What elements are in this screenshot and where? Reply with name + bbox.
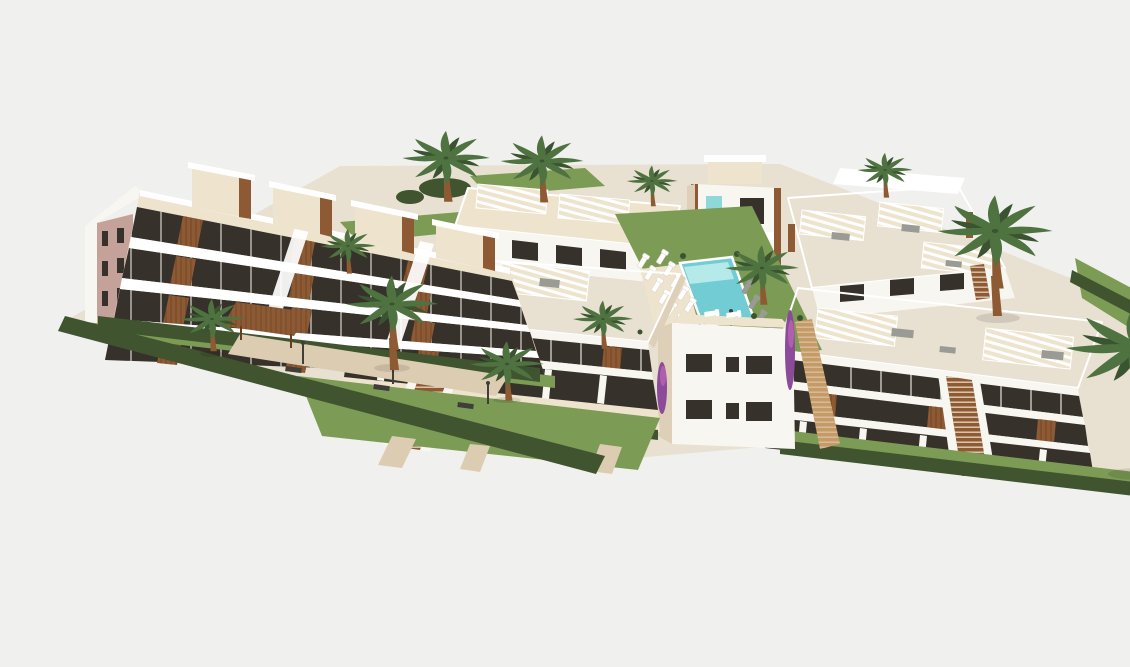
- lamp-post: [487, 384, 489, 404]
- pergola-post: [240, 326, 242, 340]
- roof-box: [708, 162, 762, 184]
- window: [890, 278, 914, 296]
- architectural-rendering: [40, 16, 1130, 651]
- window: [600, 249, 626, 270]
- potted-plant: [751, 313, 757, 319]
- hedge: [396, 190, 424, 204]
- wood-panel: [788, 224, 795, 252]
- pergola-post: [290, 334, 292, 348]
- facade: [672, 323, 795, 449]
- bougainvillea-bloom: [660, 366, 666, 386]
- lamp-post: [302, 344, 304, 364]
- window: [940, 273, 964, 291]
- architectural-render-svg: [40, 16, 1130, 651]
- bougainvillea-bloom: [788, 320, 794, 348]
- window: [556, 245, 582, 266]
- window: [512, 240, 538, 261]
- lamp-head: [486, 381, 490, 385]
- potted-plant: [638, 330, 643, 335]
- roof-slab: [704, 155, 766, 162]
- end-trim: [85, 223, 97, 326]
- lamp-head: [301, 341, 305, 345]
